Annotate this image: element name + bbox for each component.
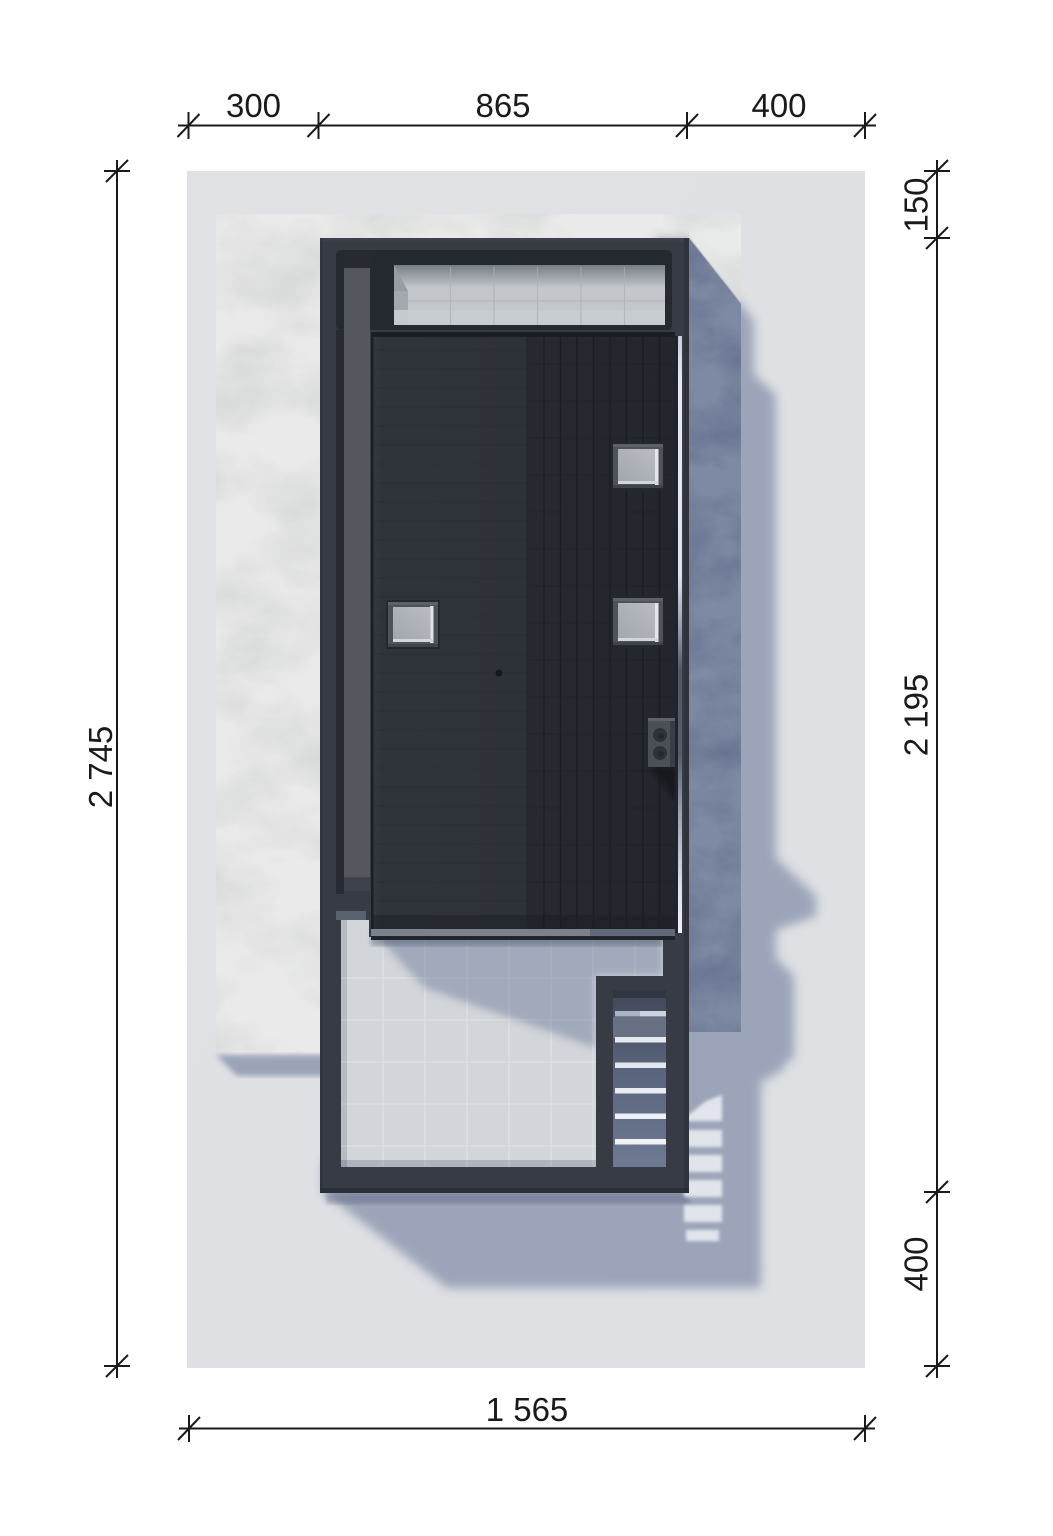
svg-text:300: 300 bbox=[226, 87, 281, 124]
svg-text:400: 400 bbox=[751, 87, 806, 124]
svg-text:150: 150 bbox=[898, 177, 935, 232]
svg-text:2 745: 2 745 bbox=[82, 726, 119, 809]
svg-text:2 195: 2 195 bbox=[898, 674, 935, 757]
svg-text:400: 400 bbox=[898, 1236, 935, 1291]
svg-text:1 565: 1 565 bbox=[486, 1391, 569, 1428]
svg-text:865: 865 bbox=[475, 87, 530, 124]
